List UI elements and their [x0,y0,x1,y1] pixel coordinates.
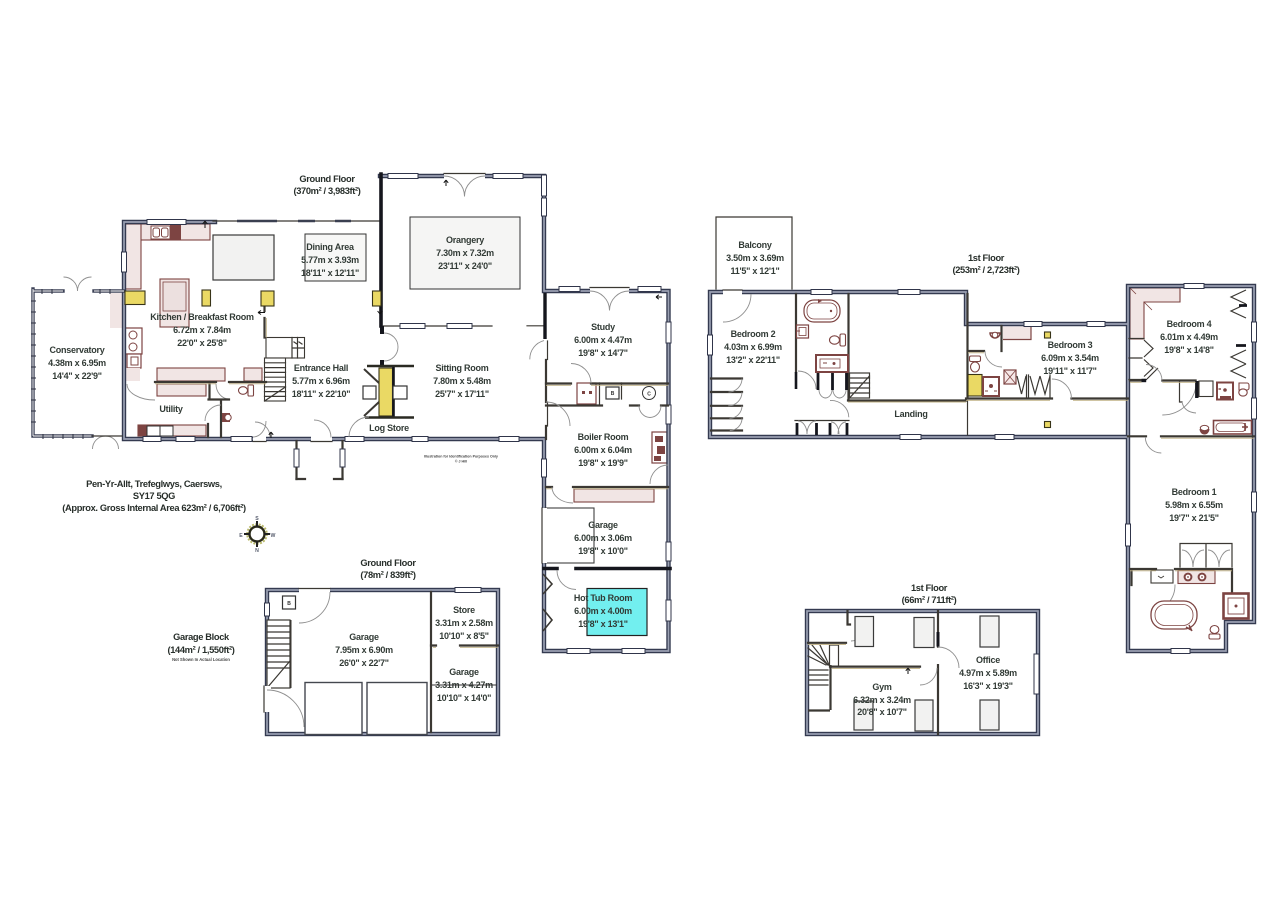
svg-text:3.50m x 3.69m: 3.50m x 3.69m [726,253,784,263]
svg-text:4.03m x 6.99m: 4.03m x 6.99m [724,342,782,352]
svg-text:Boiler Room: Boiler Room [578,432,629,442]
svg-text:4.97m x 5.89m: 4.97m x 5.89m [959,668,1017,678]
svg-text:Landing: Landing [894,409,927,419]
svg-text:Balcony: Balcony [738,240,772,250]
svg-text:Bedroom 2: Bedroom 2 [731,329,776,339]
svg-text:(370m² / 3,983ft²): (370m² / 3,983ft²) [293,186,360,196]
svg-text:Store: Store [453,605,475,615]
svg-text:B: B [611,391,615,397]
svg-text:Entrance Hall: Entrance Hall [294,363,348,373]
svg-text:Study: Study [591,322,615,332]
svg-text:14'4" x 22'9": 14'4" x 22'9" [52,371,102,381]
svg-text:5.77m x 3.93m: 5.77m x 3.93m [301,255,359,265]
svg-text:SY17 5QG: SY17 5QG [133,491,175,501]
svg-text:7.80m x 5.48m: 7.80m x 5.48m [433,376,491,386]
svg-text:(144m² / 1,550ft²): (144m² / 1,550ft²) [167,645,234,655]
svg-text:19'11" x 11'7": 19'11" x 11'7" [1043,366,1096,376]
svg-text:(Approx. Gross Internal Area 6: (Approx. Gross Internal Area 623m² / 6,7… [62,503,246,513]
svg-text:10'10" x 8'5": 10'10" x 8'5" [439,631,489,641]
svg-text:W: W [271,533,276,539]
svg-text:5.98m x 6.55m: 5.98m x 6.55m [1165,500,1223,510]
svg-text:N: N [255,548,259,554]
svg-text:20'8" x 10'7": 20'8" x 10'7" [857,707,907,717]
svg-text:22'0" x 25'8": 22'0" x 25'8" [177,338,227,348]
svg-text:Bedroom 3: Bedroom 3 [1048,340,1093,350]
svg-text:Garage: Garage [449,667,479,677]
svg-text:E: E [239,533,243,539]
svg-text:Illustration for Identificatio: Illustration for Identification Purposes… [424,455,498,459]
svg-text:C: C [647,392,651,398]
svg-text:25'7" x 17'11": 25'7" x 17'11" [435,389,489,399]
svg-text:3.31m x 2.58m: 3.31m x 2.58m [435,618,493,628]
svg-text:11'5" x 12'1": 11'5" x 12'1" [730,266,779,276]
svg-text:6.32m x 3.24m: 6.32m x 3.24m [853,695,911,705]
svg-text:6.00m x 4.00m: 6.00m x 4.00m [574,606,632,616]
svg-text:1st Floor: 1st Floor [968,253,1005,263]
svg-text:Log Store: Log Store [369,423,409,433]
svg-text:16'3" x 19'3": 16'3" x 19'3" [963,681,1013,691]
svg-text:Garage: Garage [588,520,618,530]
svg-text:Dining Area: Dining Area [306,242,355,252]
svg-text:Kitchen / Breakfast Room: Kitchen / Breakfast Room [150,312,254,322]
svg-text:18'11" x 22'10": 18'11" x 22'10" [292,389,351,399]
svg-text:Office: Office [976,655,1000,665]
svg-text:Garage Block: Garage Block [173,632,230,642]
svg-text:1st Floor: 1st Floor [911,583,948,593]
svg-text:13'2" x 22'11": 13'2" x 22'11" [726,355,780,365]
svg-text:6.00m x 4.47m: 6.00m x 4.47m [574,335,632,345]
svg-text:6.00m x 3.06m: 6.00m x 3.06m [574,533,632,543]
svg-text:Utility: Utility [159,404,182,414]
svg-text:26'0" x 22'7": 26'0" x 22'7" [339,658,389,668]
svg-text:19'8" x 14'8": 19'8" x 14'8" [1164,345,1214,355]
svg-text:18'11" x 12'11": 18'11" x 12'11" [301,268,359,278]
svg-text:Hot Tub Room: Hot Tub Room [574,593,633,603]
svg-text:(66m² / 711ft²): (66m² / 711ft²) [902,595,957,605]
svg-text:6.01m x 4.49m: 6.01m x 4.49m [1160,332,1218,342]
svg-text:19'8" x 19'9": 19'8" x 19'9" [578,458,628,468]
svg-text:19'8" x 13'1": 19'8" x 13'1" [578,619,628,629]
svg-text:Gym: Gym [872,682,892,692]
svg-text:6.09m x 3.54m: 6.09m x 3.54m [1041,353,1099,363]
svg-text:7.95m x 6.90m: 7.95m x 6.90m [335,645,393,655]
svg-text:4.38m x 6.95m: 4.38m x 6.95m [48,358,106,368]
svg-text:Not Shown In Actual Location: Not Shown In Actual Location [172,657,230,662]
svg-text:6.00m x 6.04m: 6.00m x 6.04m [574,445,632,455]
svg-text:Garage: Garage [349,632,379,642]
svg-text:B: B [287,601,291,607]
svg-text:Conservatory: Conservatory [49,345,104,355]
svg-text:Bedroom 4: Bedroom 4 [1167,319,1212,329]
svg-text:19'7" x 21'5": 19'7" x 21'5" [1169,513,1219,523]
svg-text:Ground Floor: Ground Floor [360,558,416,568]
svg-text:23'11" x 24'0": 23'11" x 24'0" [438,261,492,271]
svg-text:19'8" x 10'0": 19'8" x 10'0" [578,546,628,556]
svg-text:Orangery: Orangery [446,235,484,245]
svg-text:Ground Floor: Ground Floor [299,174,355,184]
svg-text:Bedroom 1: Bedroom 1 [1172,487,1217,497]
svg-text:7.30m x 7.32m: 7.30m x 7.32m [436,248,494,258]
svg-text:(253m² / 2,723ft²): (253m² / 2,723ft²) [952,265,1019,275]
svg-text:© J Hill: © J Hill [455,460,467,464]
svg-text:S: S [255,516,259,522]
svg-text:(78m² / 839ft²): (78m² / 839ft²) [360,570,415,580]
svg-text:6.72m x 7.84m: 6.72m x 7.84m [173,325,231,335]
svg-text:10'10" x 14'0": 10'10" x 14'0" [437,693,491,703]
svg-text:19'8" x 14'7": 19'8" x 14'7" [578,348,628,358]
svg-text:5.77m x 6.96m: 5.77m x 6.96m [292,376,350,386]
svg-text:Pen-Yr-Allt, Trefeglwys, Caers: Pen-Yr-Allt, Trefeglwys, Caersws, [86,479,222,489]
svg-text:Sitting Room: Sitting Room [436,363,489,373]
